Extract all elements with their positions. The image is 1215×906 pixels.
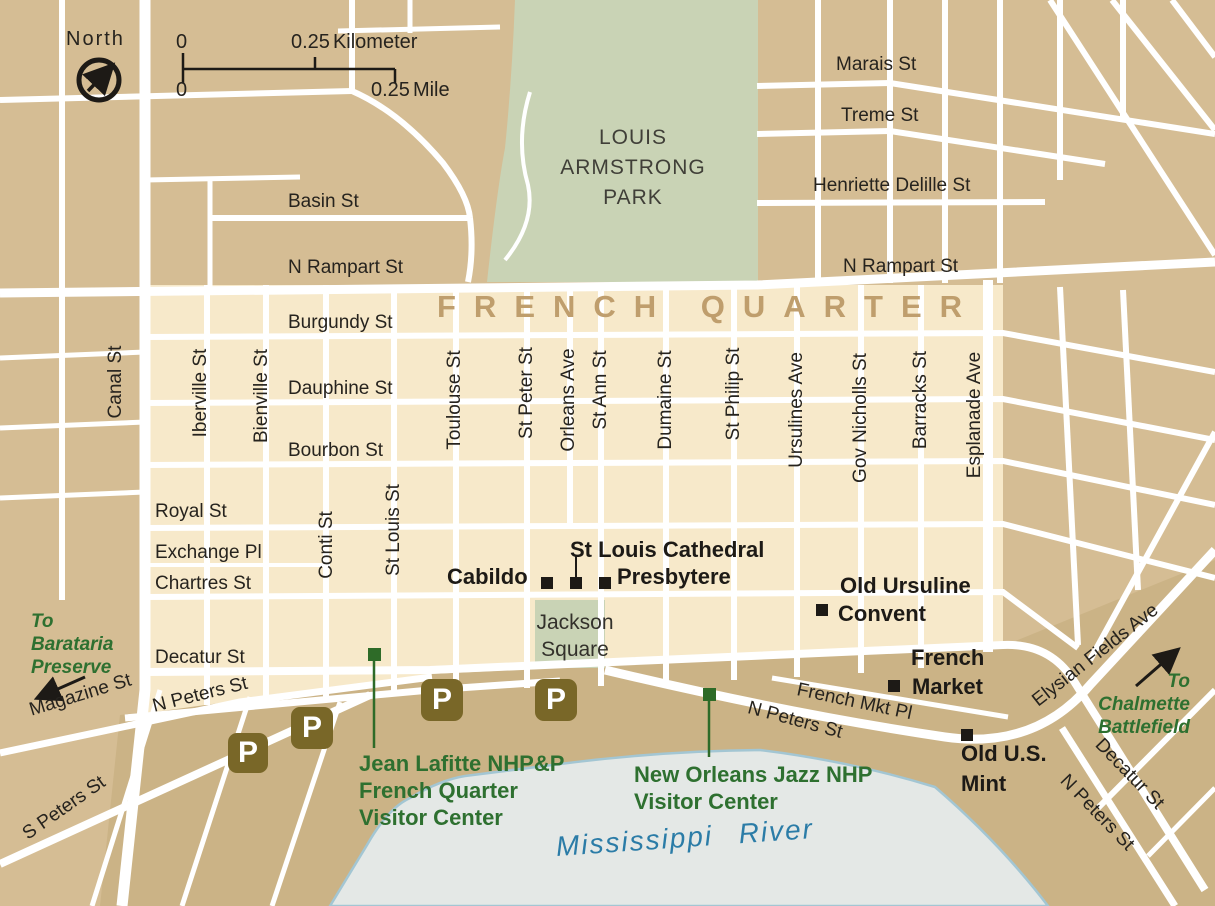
jazz-vc-marker: [703, 688, 716, 701]
scale-mi-unit: Mile: [413, 79, 450, 101]
scale-km-unit: Kilometer: [333, 31, 417, 53]
street-label-esplanade: Esplanade Ave: [964, 340, 986, 490]
old-ursuline-label-line2: Convent: [838, 603, 926, 625]
parking-icon: P: [291, 707, 333, 749]
french-market-label-line1: French: [911, 647, 984, 669]
jazz-vc-label: New Orleans Jazz NHP Visitor Center: [634, 761, 872, 815]
ursuline-convent-marker: [816, 604, 828, 616]
cabildo-marker: [541, 577, 553, 589]
street-label-iberville: Iberville St: [190, 318, 212, 468]
street-label-n-rampart-right: N Rampart St: [843, 256, 958, 278]
jazz-line1: New Orleans Jazz NHP: [634, 761, 872, 788]
jackson-label-line2: Square: [515, 636, 635, 663]
louis-armstrong-park-label: LOUIS ARMSTRONG PARK: [553, 123, 713, 213]
street-label-st-louis: St Louis St: [383, 455, 405, 605]
jean-lafitte-line2: French Quarter: [359, 777, 564, 804]
cathedral-marker: [570, 577, 582, 589]
barataria-line1: To: [31, 610, 113, 633]
north-label: North: [66, 28, 125, 50]
french-quarter-map: North 0 0.25Kilometer 0 0.25Mile LOUIS A…: [0, 0, 1215, 906]
jean-lafitte-vc-marker: [368, 648, 381, 661]
scale-km-zero: 0: [176, 31, 187, 53]
street-label-barracks: Barracks St: [910, 325, 932, 475]
street-label-decatur: Decatur St: [155, 647, 245, 669]
jackson-label-line1: Jackson: [515, 609, 635, 636]
scale-km-label: 0.25Kilometer: [291, 31, 417, 53]
street-label-bienville: Bienville St: [251, 321, 273, 471]
scale-km-value: 0.25: [291, 31, 330, 53]
barataria-guide-label: To Barataria Preserve: [31, 610, 113, 679]
street-label-gov-nicholls: Gov Nicholls St: [850, 343, 872, 493]
street-label-dauphine: Dauphine St: [288, 378, 393, 400]
street-label-orleans: Orleans Ave: [558, 325, 580, 475]
park-label-line1: LOUIS: [553, 123, 713, 153]
french-market-label-line2: Market: [912, 676, 983, 698]
old-us-mint-label-line1: Old U.S.: [961, 743, 1047, 765]
street-label-royal: Royal St: [155, 501, 227, 523]
parking-icon: P: [535, 679, 577, 721]
street-label-st-ann: St Ann St: [590, 315, 612, 465]
barataria-line3: Preserve: [31, 656, 113, 679]
chalmette-line3: Battlefield: [1078, 716, 1190, 739]
chalmette-line2: Chalmette: [1078, 693, 1190, 716]
street-label-marais: Marais St: [836, 54, 916, 76]
scale-mi-zero: 0: [176, 79, 187, 101]
street-label-burgundy: Burgundy St: [288, 312, 393, 334]
street-label-toulouse: Toulouse St: [444, 325, 466, 475]
st-louis-cathedral-label: St Louis Cathedral: [570, 539, 764, 561]
street-label-conti: Conti St: [316, 470, 338, 620]
chalmette-line1: To: [1078, 670, 1190, 693]
street-label-basin: Basin St: [288, 191, 359, 213]
street-label-bourbon: Bourbon St: [288, 440, 383, 462]
jean-lafitte-line3: Visitor Center: [359, 804, 564, 831]
barataria-line2: Barataria: [31, 633, 113, 656]
street-label-treme: Treme St: [841, 105, 918, 127]
street-label-dumaine: Dumaine St: [655, 325, 677, 475]
presbytere-marker: [599, 577, 611, 589]
street-label-st-philip: St Philip St: [723, 319, 745, 469]
jazz-line2: Visitor Center: [634, 788, 872, 815]
park-label-line2: ARMSTRONG: [553, 153, 713, 183]
street-label-st-peter: St Peter St: [516, 318, 538, 468]
street-label-exchange: Exchange Pl: [155, 542, 262, 564]
parking-icon: P: [228, 733, 268, 773]
street-label-henriette-delille: Henriette Delille St: [813, 175, 970, 197]
jean-lafitte-vc-label: Jean Lafitte NHP&P French Quarter Visito…: [359, 750, 564, 831]
old-us-mint-label-line2: Mint: [961, 773, 1006, 795]
scale-mi-label: 0.25Mile: [371, 79, 450, 101]
street-label-ursulines: Ursulines Ave: [786, 335, 808, 485]
scale-mi-value: 0.25: [371, 79, 410, 101]
jackson-square-label: Jackson Square: [515, 609, 635, 663]
french-quarter-label: FRENCH QUARTER: [437, 296, 980, 318]
jean-lafitte-line1: Jean Lafitte NHP&P: [359, 750, 564, 777]
french-market-marker: [888, 680, 900, 692]
street-label-chartres: Chartres St: [155, 573, 251, 595]
street-label-canal: Canal St: [105, 307, 127, 457]
cabildo-label: Cabildo: [447, 566, 528, 588]
parking-icon: P: [421, 679, 463, 721]
presbytere-label: Presbytere: [617, 566, 731, 588]
street-label-n-rampart-left: N Rampart St: [288, 257, 403, 279]
chalmette-guide-label: To Chalmette Battlefield: [1078, 670, 1190, 739]
park-label-line3: PARK: [553, 183, 713, 213]
old-us-mint-marker: [961, 729, 973, 741]
old-ursuline-label-line1: Old Ursuline: [840, 575, 971, 597]
